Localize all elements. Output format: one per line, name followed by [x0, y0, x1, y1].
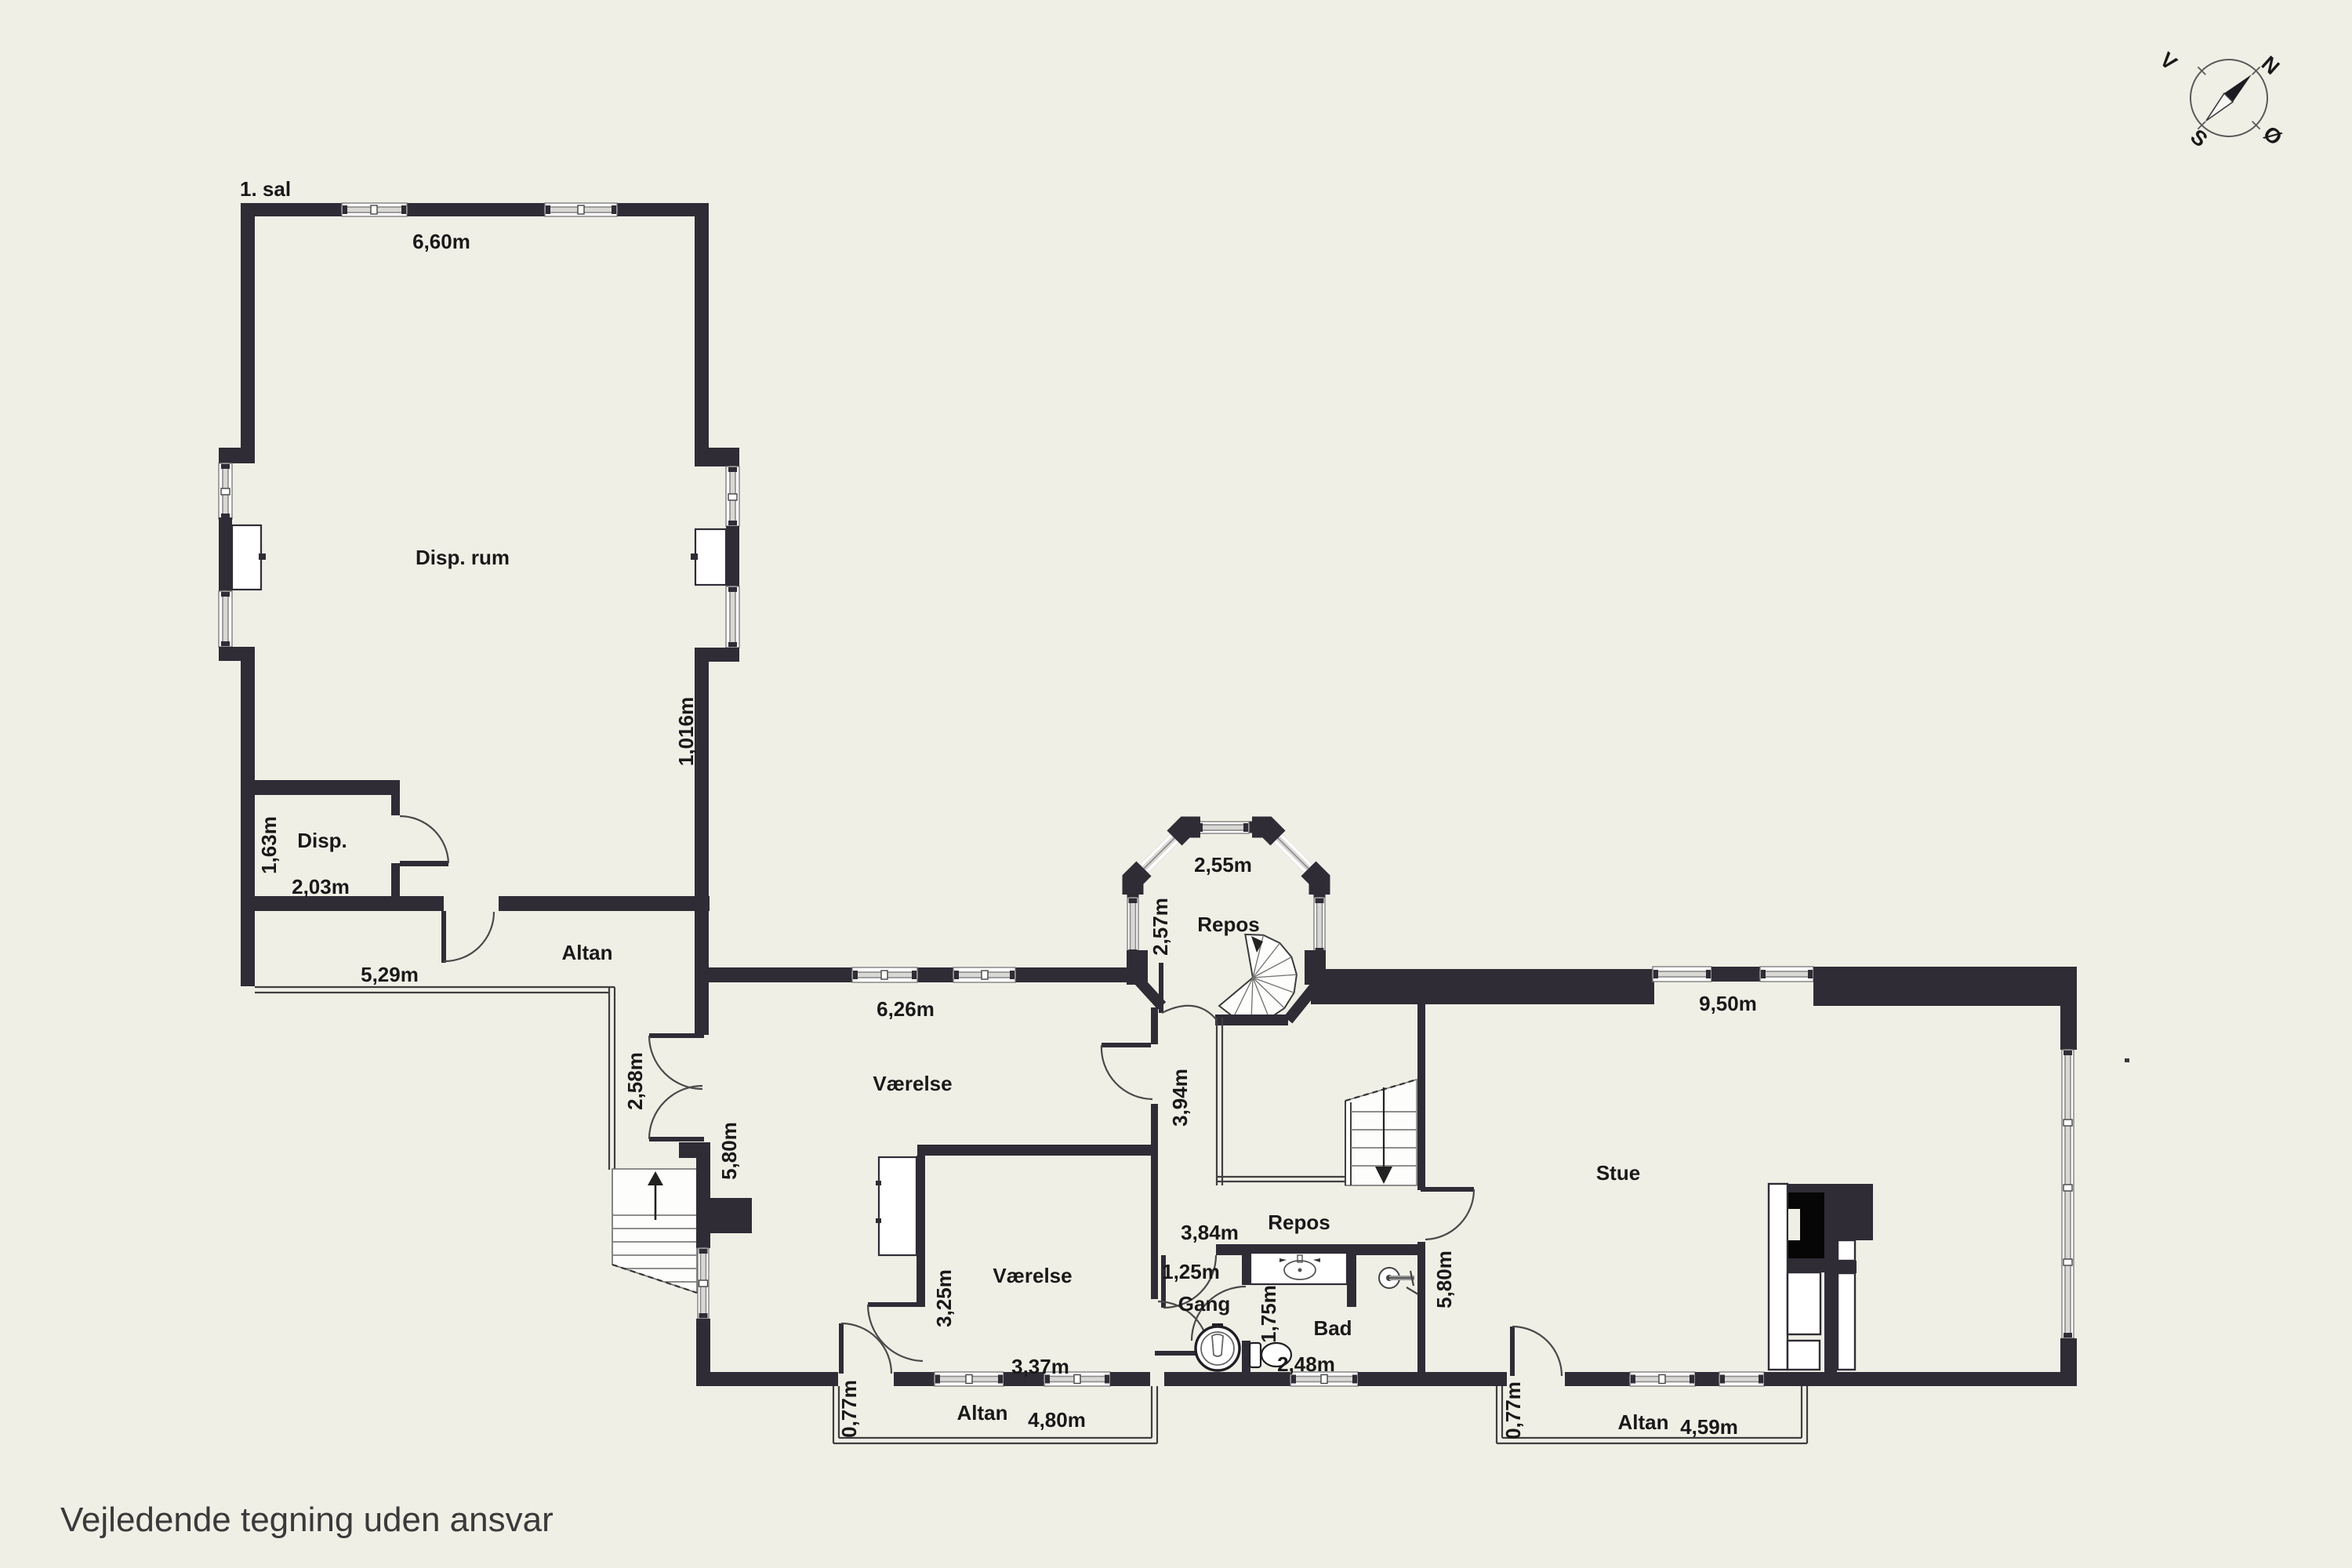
svg-text:2,03m: 2,03m	[292, 875, 350, 898]
svg-text:Altan: Altan	[1618, 1410, 1669, 1434]
svg-text:Gang: Gang	[1178, 1292, 1230, 1316]
svg-text:Værelse: Værelse	[993, 1264, 1072, 1287]
svg-text:Disp. rum: Disp. rum	[416, 546, 510, 569]
svg-text:Repos: Repos	[1197, 913, 1259, 936]
svg-text:3,84m: 3,84m	[1181, 1221, 1239, 1244]
svg-text:1,016m: 1,016m	[674, 697, 698, 766]
svg-text:4,80m: 4,80m	[1028, 1408, 1086, 1432]
svg-text:2,58m: 2,58m	[623, 1052, 647, 1110]
svg-text:Værelse: Værelse	[873, 1072, 952, 1095]
svg-text:Altan: Altan	[562, 941, 613, 964]
svg-text:2,48m: 2,48m	[1277, 1352, 1335, 1376]
svg-text:Bad: Bad	[1313, 1316, 1352, 1340]
svg-text:2,55m: 2,55m	[1194, 853, 1252, 877]
svg-text:5,80m: 5,80m	[1432, 1250, 1456, 1308]
svg-text:5,29m: 5,29m	[361, 963, 419, 986]
svg-text:1,63m: 1,63m	[257, 816, 281, 874]
svg-text:Disp.: Disp.	[297, 829, 347, 852]
svg-text:3,37m: 3,37m	[1011, 1355, 1069, 1378]
svg-text:0,77m: 0,77m	[837, 1380, 861, 1438]
svg-text:Altan: Altan	[957, 1401, 1008, 1425]
svg-text:3,25m: 3,25m	[932, 1269, 956, 1327]
svg-text:4,59m: 4,59m	[1680, 1415, 1738, 1439]
svg-text:1,25m: 1,25m	[1162, 1260, 1220, 1283]
svg-text:5,80m: 5,80m	[717, 1122, 741, 1180]
svg-text:1. sal: 1. sal	[240, 177, 291, 201]
svg-text:0,77m: 0,77m	[1501, 1381, 1525, 1439]
svg-text:6,60m: 6,60m	[412, 230, 470, 253]
svg-text:6,26m: 6,26m	[877, 997, 935, 1021]
svg-text:3,94m: 3,94m	[1168, 1069, 1192, 1127]
svg-text:Vejledende tegning uden ansvar: Vejledende tegning uden ansvar	[60, 1501, 554, 1539]
svg-text:Stue: Stue	[1596, 1161, 1640, 1185]
svg-text:2,57m: 2,57m	[1149, 898, 1172, 956]
svg-text:1,75m: 1,75m	[1257, 1285, 1280, 1343]
svg-text:Repos: Repos	[1268, 1210, 1330, 1234]
svg-text:9,50m: 9,50m	[1699, 992, 1757, 1015]
